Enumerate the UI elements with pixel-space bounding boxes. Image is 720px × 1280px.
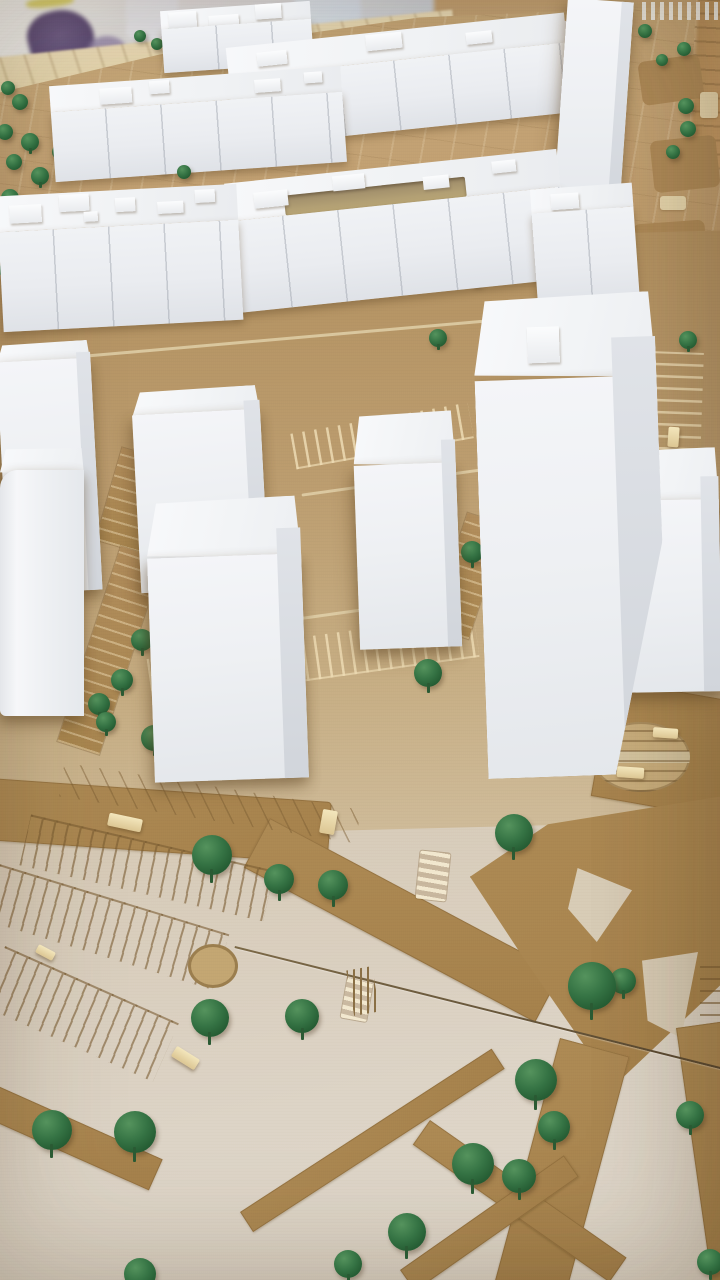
rooftop-box xyxy=(491,159,516,173)
rooftop-box xyxy=(84,211,99,222)
rooftop-box xyxy=(255,3,282,20)
tree-stem xyxy=(622,990,625,999)
tree xyxy=(429,329,447,347)
tower-building xyxy=(352,410,462,649)
tree xyxy=(679,331,697,349)
rooftop-box xyxy=(9,204,42,224)
tree xyxy=(124,1258,156,1280)
tree xyxy=(388,1213,426,1251)
tree-stem xyxy=(208,1032,211,1045)
tree-stem xyxy=(50,1144,53,1158)
car-block xyxy=(667,427,679,448)
tree-stem xyxy=(301,1028,304,1040)
tree xyxy=(452,1143,494,1185)
tree xyxy=(111,669,133,691)
tree-stem xyxy=(332,896,335,907)
tree xyxy=(502,1159,536,1193)
tree xyxy=(495,814,533,852)
wire-coil xyxy=(346,966,380,1016)
slab-building xyxy=(530,183,640,310)
tree-stem xyxy=(689,1125,692,1135)
rooftop-box xyxy=(157,201,184,214)
tree-stem xyxy=(709,1271,712,1280)
tree xyxy=(177,165,191,179)
tree xyxy=(31,167,49,185)
tree-stem xyxy=(29,148,32,154)
rooftop-box xyxy=(149,80,170,94)
tree-stem xyxy=(347,1274,350,1280)
tree-stem xyxy=(687,346,690,352)
tree-stem xyxy=(518,1188,521,1200)
rooftop-box xyxy=(304,71,323,83)
tower-building xyxy=(0,448,84,716)
tree xyxy=(334,1250,362,1278)
tree xyxy=(191,999,229,1037)
rooftop-box xyxy=(550,192,579,210)
tree xyxy=(697,1249,720,1275)
tree xyxy=(285,999,319,1033)
tree xyxy=(264,864,294,894)
tree xyxy=(192,835,232,875)
tree xyxy=(666,145,680,159)
tree-stem xyxy=(534,1095,537,1110)
tree xyxy=(12,94,28,110)
tree xyxy=(568,962,616,1010)
car-block xyxy=(653,727,679,739)
car-block xyxy=(617,766,645,779)
tree xyxy=(134,30,146,42)
tree-stem xyxy=(471,560,474,568)
tower-building xyxy=(145,495,309,782)
tower-side-face xyxy=(700,476,720,691)
tree xyxy=(96,712,116,732)
tree xyxy=(1,81,15,95)
rooftop-box xyxy=(59,194,90,213)
tree xyxy=(538,1111,570,1143)
tree xyxy=(656,54,668,66)
tree-stem xyxy=(427,683,430,693)
slab-building xyxy=(0,184,243,332)
slab-building xyxy=(49,66,347,182)
tree-stem xyxy=(278,890,281,901)
tree-stem xyxy=(437,344,440,350)
tree xyxy=(638,24,652,38)
tree xyxy=(32,1110,72,1150)
car-block xyxy=(171,1046,200,1070)
tree xyxy=(461,541,483,563)
tree-stem xyxy=(553,1139,556,1150)
car-block xyxy=(35,944,56,961)
tree xyxy=(678,98,694,114)
tree-stem xyxy=(121,688,124,696)
tree-stem xyxy=(39,182,42,188)
tree xyxy=(114,1111,156,1153)
tower-facade xyxy=(0,470,84,716)
tree xyxy=(676,1101,704,1129)
rooftop-box xyxy=(99,87,132,105)
tree-stem xyxy=(133,1147,136,1162)
model-photo xyxy=(0,0,720,1280)
tree-stem xyxy=(210,869,213,883)
tree xyxy=(414,659,442,687)
rooftop-box xyxy=(422,174,449,190)
car-block xyxy=(107,813,143,833)
tree-stem xyxy=(105,729,108,736)
tree xyxy=(680,121,696,137)
tree-stem xyxy=(512,847,515,860)
tree xyxy=(21,133,39,151)
tree xyxy=(6,154,22,170)
tree xyxy=(318,870,348,900)
rooftop-box xyxy=(254,78,281,93)
tree-stem xyxy=(590,1003,593,1020)
tree xyxy=(0,124,13,140)
tree-stem xyxy=(141,648,144,656)
tree xyxy=(677,42,691,56)
rooftop-box xyxy=(527,326,560,363)
tree-stem xyxy=(471,1179,474,1194)
rooftop-box xyxy=(195,189,216,203)
rooftop-box xyxy=(115,197,136,212)
building-facade xyxy=(0,220,243,332)
tree xyxy=(515,1059,557,1101)
tree-stem xyxy=(405,1246,408,1259)
car-block xyxy=(319,809,338,835)
